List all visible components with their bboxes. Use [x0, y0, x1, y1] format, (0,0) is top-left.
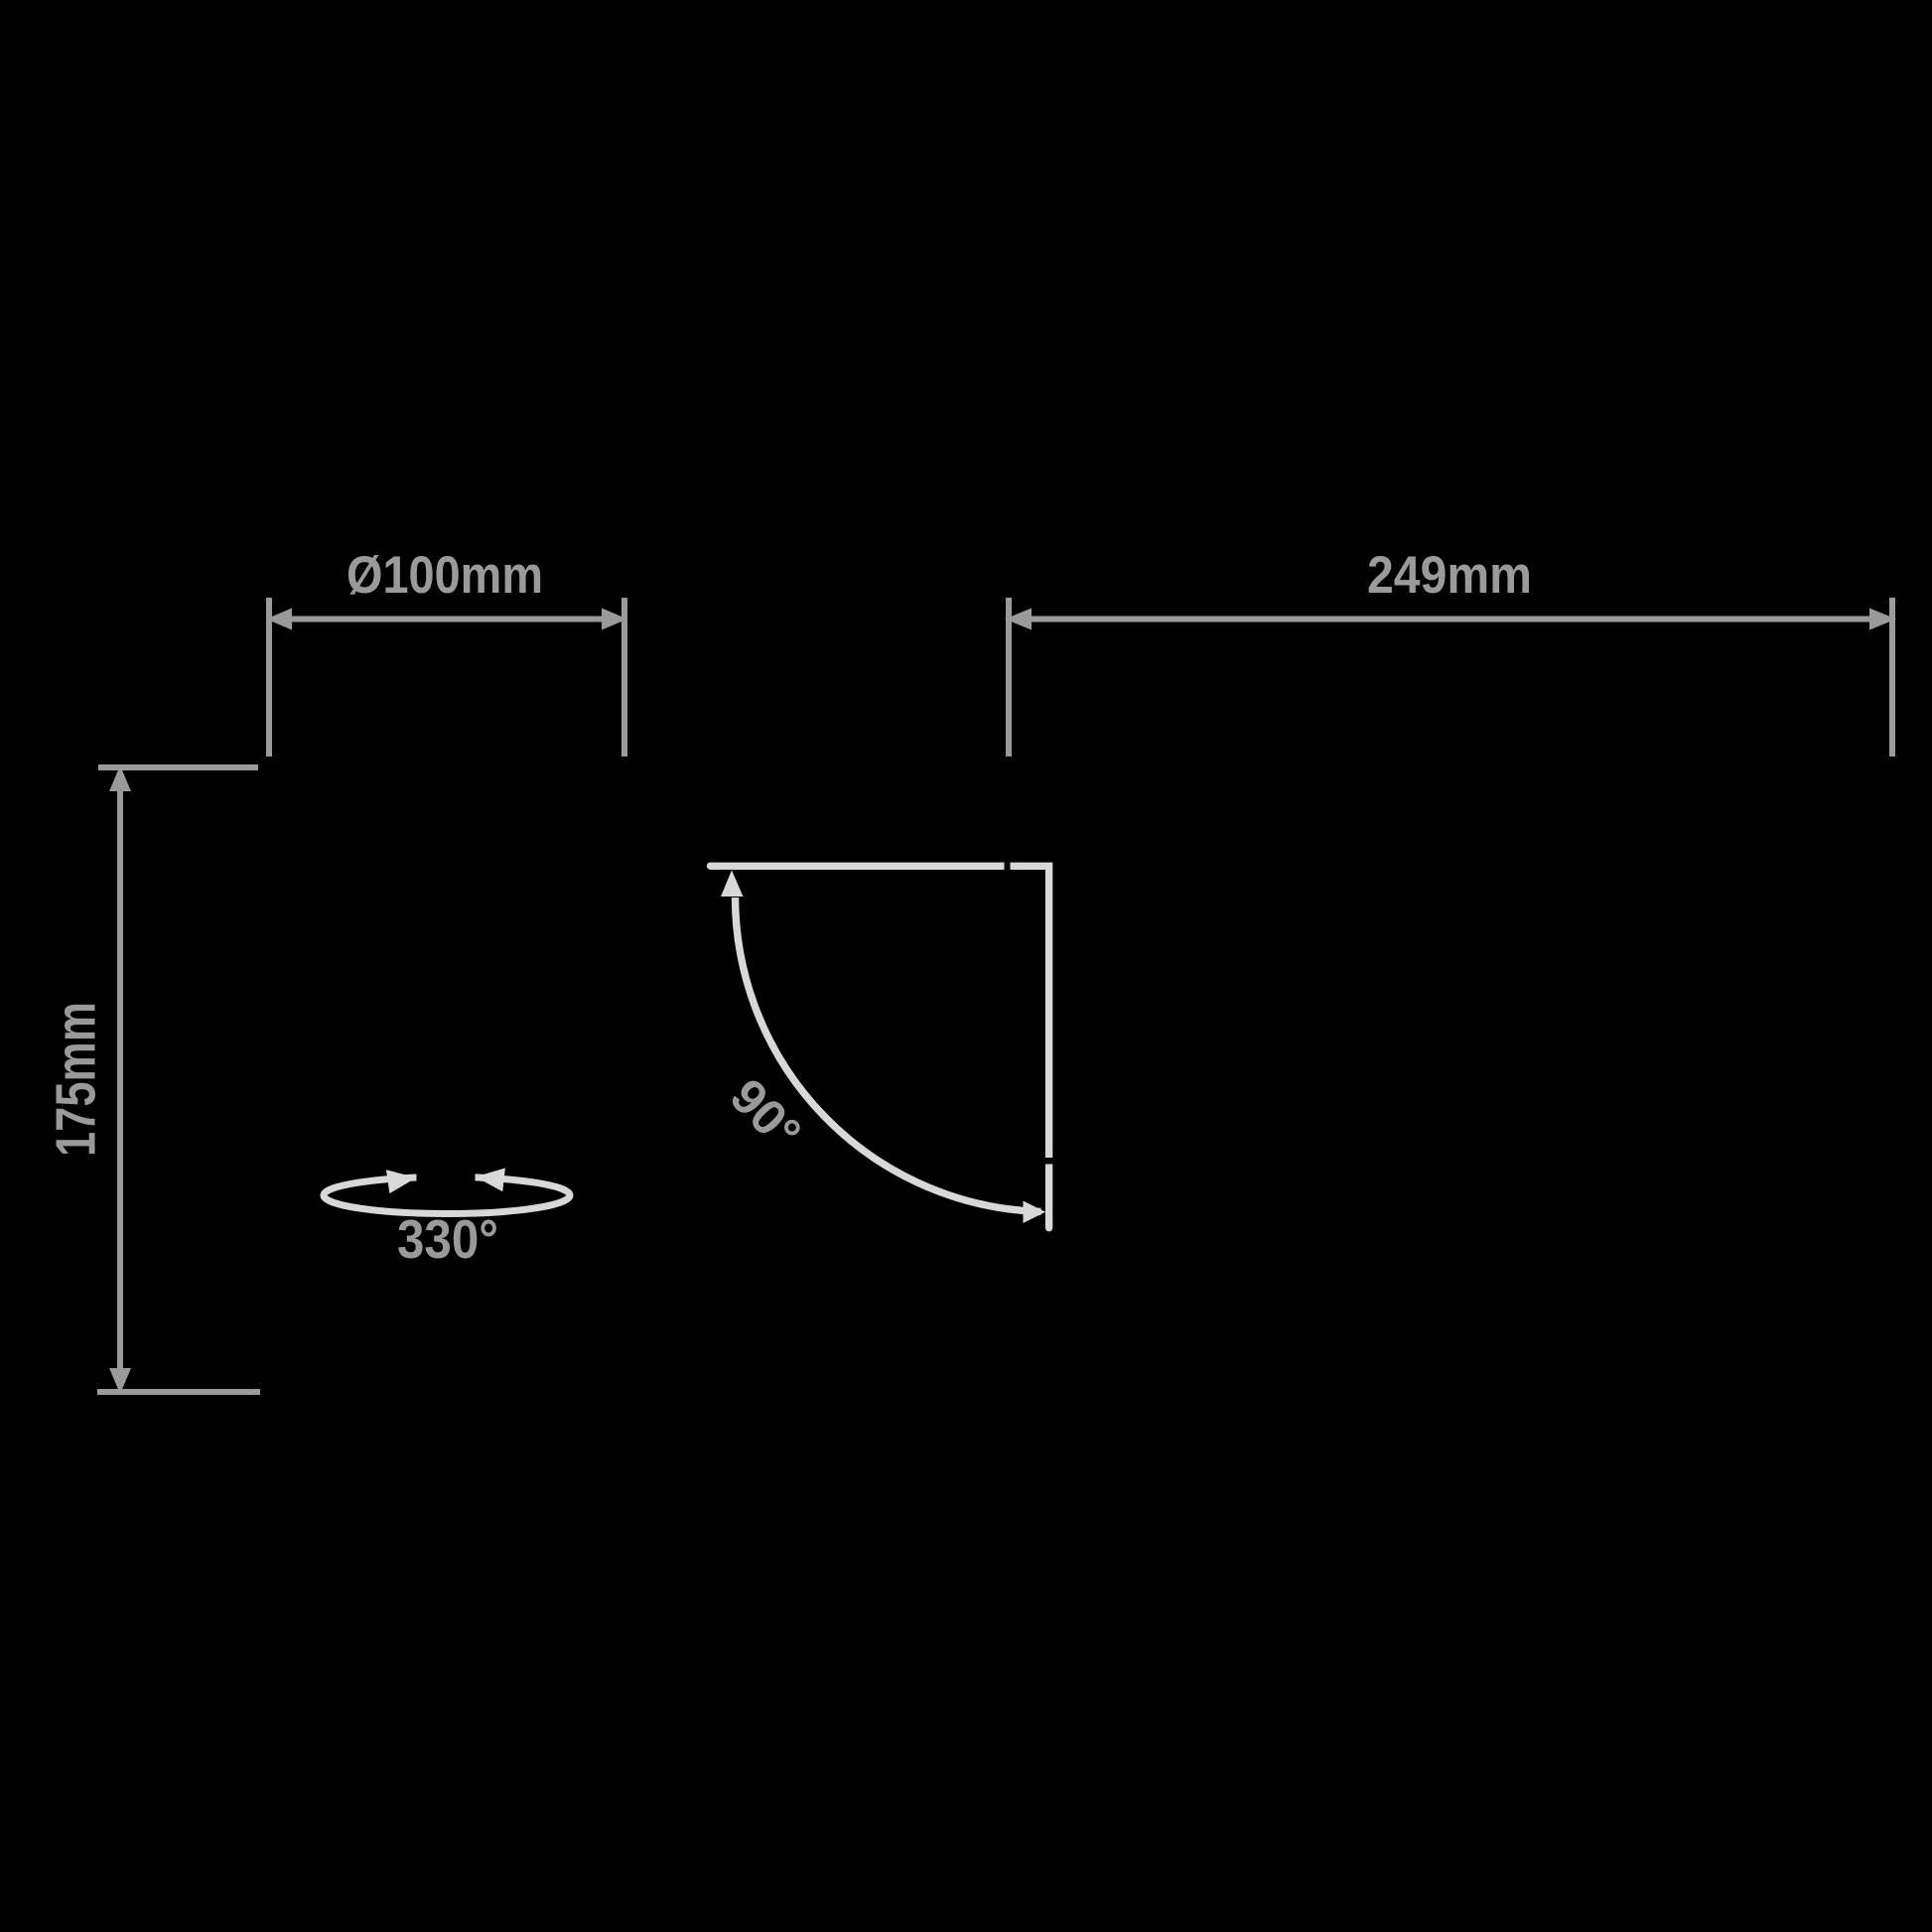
svg-text:Ø100mm: Ø100mm	[346, 546, 543, 605]
svg-text:249mm: 249mm	[1367, 546, 1532, 605]
svg-text:175mm: 175mm	[45, 1002, 108, 1157]
svg-text:330°: 330°	[397, 1208, 498, 1270]
